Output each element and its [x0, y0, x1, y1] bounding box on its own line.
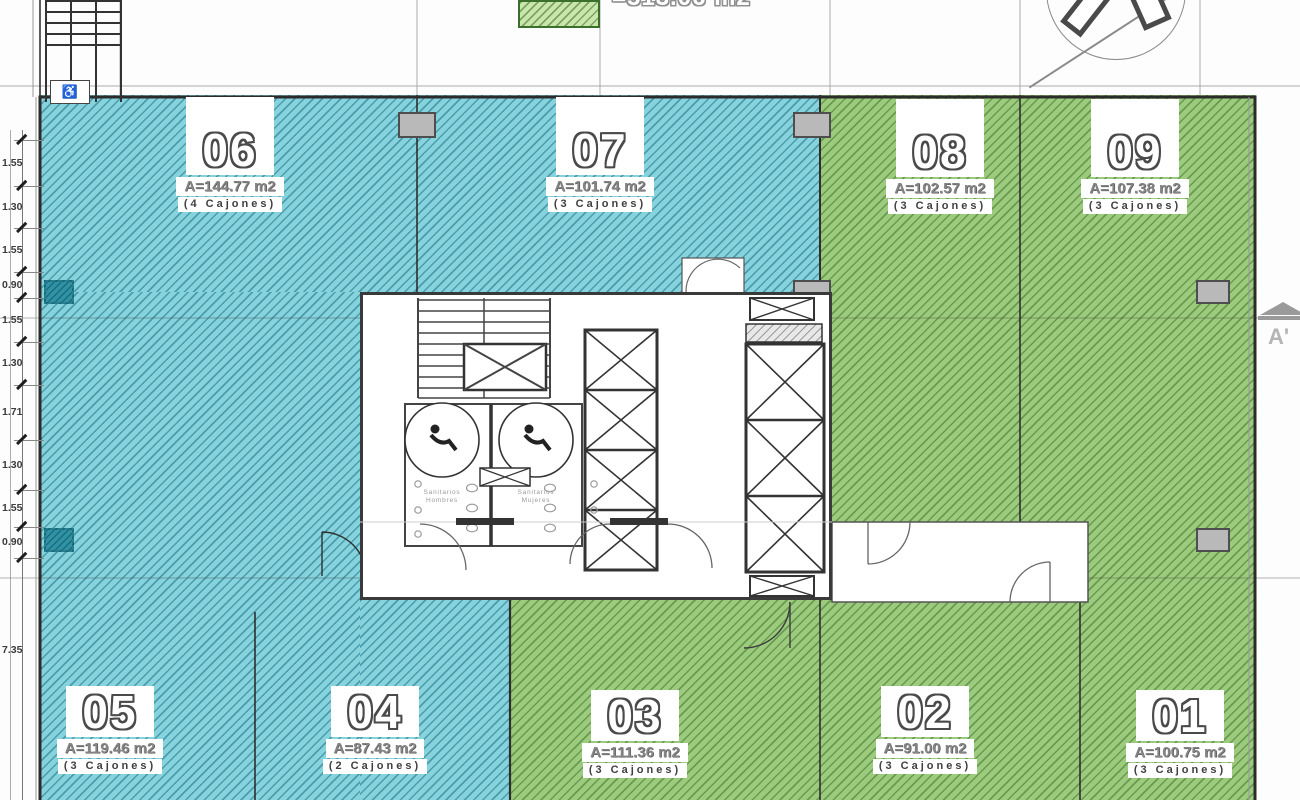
- unit-number: 08: [896, 99, 983, 177]
- unit-parking: (2 Cajones): [323, 759, 427, 774]
- dimension-label: 1.71: [2, 406, 36, 418]
- unit-label-04: 04 A=87.43 m2 (2 Cajones): [265, 686, 485, 774]
- dimension-label: 1.55: [2, 244, 36, 256]
- dimension-label: 1.30: [2, 357, 36, 369]
- unit-number: 05: [66, 686, 153, 737]
- unit-label-08: 08 A=102.57 m2 (3 Cajones): [830, 99, 1050, 214]
- dimension-label: 1.55: [2, 314, 36, 326]
- column: [1196, 528, 1230, 552]
- bathroom-label-left: Sanitarios: [424, 489, 461, 496]
- unit-number: 04: [331, 686, 418, 737]
- unit-label-06: 06 A=144.77 m2 (4 Cajones): [120, 97, 340, 212]
- legend-swatch-green: [518, 0, 600, 28]
- unit-area: A=100.75 m2: [1126, 743, 1233, 762]
- unit-number: 09: [1091, 99, 1178, 177]
- unit-parking: (3 Cajones): [1128, 763, 1232, 778]
- column: [398, 112, 436, 138]
- unit-parking: (3 Cajones): [888, 199, 992, 214]
- unit-parking: (3 Cajones): [583, 763, 687, 778]
- dimension-label: 1.30: [2, 201, 36, 213]
- column: [44, 528, 74, 552]
- column: [793, 112, 831, 138]
- exterior-stair: [45, 0, 122, 50]
- unit-area: A=102.57 m2: [886, 179, 993, 198]
- section-marker-icon: [1260, 302, 1300, 315]
- unit-parking: (3 Cajones): [1083, 199, 1187, 214]
- unit-label-07: 07 A=101.74 m2 (3 Cajones): [490, 97, 710, 212]
- elevator-bank-right: [746, 298, 824, 596]
- unit-label-03: 03 A=111.36 m2 (3 Cajones): [525, 690, 745, 778]
- dimension-label: 0.90: [2, 536, 36, 548]
- legend-total-area: =513.06 m2: [612, 0, 751, 12]
- core-area: Sanitarios Hombres Sanitarios Mujeres: [360, 292, 832, 600]
- dimension-label: 0.90: [2, 279, 36, 291]
- unit-number: 06: [186, 97, 273, 175]
- column: [1196, 280, 1230, 304]
- section-marker-label: A': [1268, 324, 1289, 350]
- unit-parking: (3 Cajones): [548, 197, 652, 212]
- bathroom-label-left2: Hombres: [426, 497, 458, 504]
- unit-area: A=111.36 m2: [582, 743, 688, 762]
- unit-label-01: 01 A=100.75 m2 (3 Cajones): [1070, 690, 1290, 778]
- accessibility-icon: ♿: [50, 80, 90, 104]
- dimension-label: 7.35: [2, 644, 36, 656]
- unit-parking: (3 Cajones): [873, 759, 977, 774]
- unit-number: 07: [556, 97, 643, 175]
- bathroom-label-right: Sanitarios: [518, 489, 555, 496]
- unit-area: A=101.74 m2: [546, 177, 653, 196]
- unit-area: A=87.43 m2: [326, 739, 425, 758]
- unit-area: A=144.77 m2: [176, 177, 283, 196]
- dimension-label: 1.55: [2, 157, 36, 169]
- dimension-label: 1.30: [2, 459, 36, 471]
- section-marker-base: [1258, 316, 1300, 320]
- unit-parking: (3 Cajones): [58, 759, 162, 774]
- unit-parking: (4 Cajones): [178, 197, 282, 212]
- unit-label-02: 02 A=91.00 m2 (3 Cajones): [815, 686, 1035, 774]
- unit-number: 03: [591, 690, 678, 741]
- unit-area: A=91.00 m2: [876, 739, 975, 758]
- unit-area: A=107.38 m2: [1081, 179, 1188, 198]
- unit-number: 01: [1136, 690, 1223, 741]
- elevator-bank-center: [585, 330, 657, 570]
- unit-label-09: 09 A=107.38 m2 (3 Cajones): [1025, 99, 1245, 214]
- unit-label-05: 05 A=119.46 m2 (3 Cajones): [0, 686, 220, 774]
- unit-number: 02: [881, 686, 968, 737]
- column: [44, 280, 74, 304]
- floor-plan: Sanitarios Hombres Sanitarios Mujeres 06…: [0, 0, 1300, 800]
- unit-area: A=119.46 m2: [57, 739, 164, 758]
- bathroom-label-right2: Mujeres: [522, 497, 551, 504]
- dimension-label: 1.55: [2, 502, 36, 514]
